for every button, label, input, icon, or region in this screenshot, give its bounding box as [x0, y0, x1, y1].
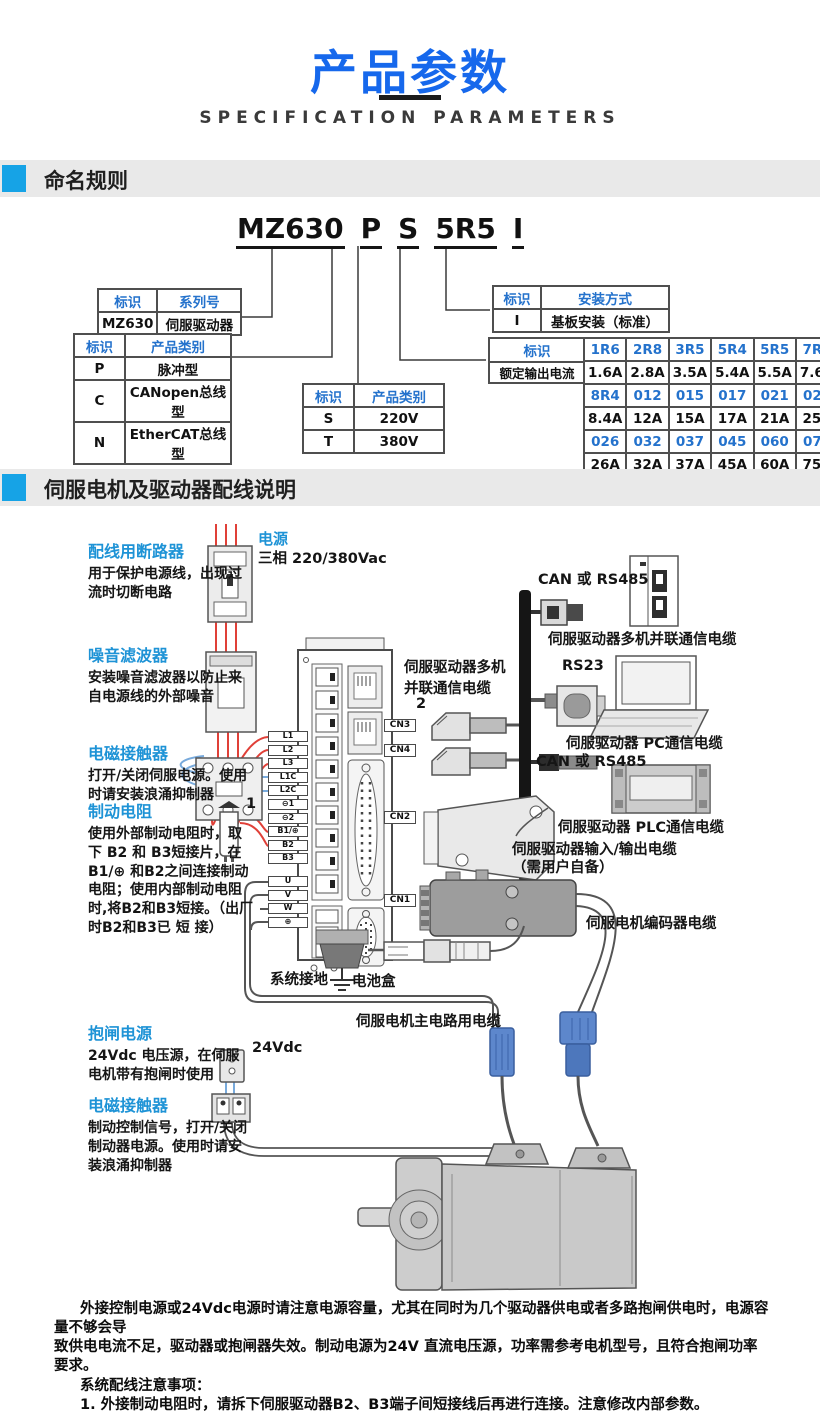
current-cell: 5.5A	[754, 361, 796, 384]
model-segment-voltage: S	[397, 212, 419, 249]
model-segment-mount: I	[512, 212, 524, 249]
terminal-L1: L1	[268, 731, 308, 742]
terminal-L1C: L1C	[268, 772, 308, 783]
current-cell: 075	[796, 430, 820, 453]
type-cell: EtherCAT总线型	[125, 422, 231, 464]
voltage-cell: S	[303, 407, 354, 430]
type-cell: N	[74, 422, 125, 464]
note-contactor: 电磁接触器 打开/关闭伺服电源。使用时请安装浪涌抑制器	[88, 740, 248, 805]
terminal-W: W	[268, 903, 308, 914]
mount-cell: I	[493, 309, 541, 332]
current-cell: 7R6	[796, 338, 820, 361]
current-cell: 1R6	[584, 338, 626, 361]
footer-line: 系统配线注意事项：	[54, 1377, 770, 1396]
terminal-ground: ⊕	[268, 917, 308, 928]
note-body: 使用外部制动电阻时，取下 B2 和 B3短接片，在B1/⊕ 和B2之间连接制动电…	[88, 825, 254, 938]
current-cell: 15A	[669, 407, 711, 430]
voltage-cell: 220V	[354, 407, 444, 430]
current-cell: 3R5	[669, 338, 711, 361]
page-title: 产品参数	[0, 34, 820, 103]
title-underline	[379, 95, 441, 100]
current-cell: 8.4A	[584, 407, 626, 430]
series-cell: 伺服驱动器	[157, 312, 241, 335]
terminal-L3: L3	[268, 758, 308, 769]
current-cell: 8R4	[584, 384, 626, 407]
footer-line: 外接控制电源或24Vdc电源时请注意电源容量，尤其在同时为几个驱动器供电或者多路…	[54, 1300, 770, 1338]
type-header: 标识	[74, 334, 125, 357]
current-cell: 21A	[754, 407, 796, 430]
note-breaker: 配线用断路器 用于保护电源线，出现过流时切断电路	[88, 538, 248, 603]
note-body: 制动控制信号，打开/关闭制动器电源。使用时请安装浪涌抑制器	[88, 1119, 248, 1175]
series-header: 标识	[98, 289, 157, 312]
type-table: 标识 产品类别 P 脉冲型 C CANopen总线型 N EtherCAT总线型	[73, 333, 232, 465]
footer-line: 致供电电流不足，驱动器或抱闸器失效。制动电源为24V 直流电压源，功率需参考电机…	[54, 1338, 770, 1376]
model-code: MZ630 P S 5R5 I	[236, 212, 524, 249]
wiring-diagram: 电源 三相 220/380Vac 配线用断路器 用于保护电源线，出现过流时切断电…	[0, 510, 820, 1300]
terminal-L2C: L2C	[268, 785, 308, 796]
section-wiring-header: 伺服电机及驱动器配线说明	[0, 469, 820, 506]
voltage-header: 产品类别	[354, 384, 444, 407]
cn4-port-label: CN4	[384, 744, 416, 757]
note-body: 安装噪音滤波器以防止来自电源线的外部噪音	[88, 669, 248, 707]
num2-label: 2	[416, 696, 426, 712]
terminal-B2: B2	[268, 840, 308, 851]
terminal-minus2: ⊖2	[268, 813, 308, 824]
type-cell: C	[74, 380, 125, 422]
current-label: 额定输出电流	[489, 362, 585, 383]
current-cell: 021	[754, 384, 796, 407]
v24-label: 24Vdc	[252, 1040, 302, 1056]
multi-cable-label: 伺服驱动器多机并联通信电缆	[548, 628, 737, 649]
type-header: 产品类别	[125, 334, 231, 357]
daisy-chain-graphic	[531, 556, 678, 626]
footer-notes: 外接控制电源或24Vdc电源时请注意电源容量，尤其在同时为几个驱动器供电或者多路…	[54, 1300, 770, 1412]
encoder-cable-label: 伺服电机编码器电缆	[586, 912, 717, 933]
terminal-minus1: ⊖1	[268, 799, 308, 810]
current-cell: 2.8A	[626, 361, 668, 384]
current-cell: 026	[584, 430, 626, 453]
current-cell: 037	[669, 430, 711, 453]
current-cell: 3.5A	[669, 361, 711, 384]
main-cable-label: 伺服电机主电路用电缆	[356, 1010, 501, 1031]
current-cell: 060	[754, 430, 796, 453]
rs23-label: RS23	[562, 658, 604, 674]
rj45-cable-graphic	[432, 713, 522, 775]
section-wiring-title: 伺服电机及驱动器配线说明	[44, 474, 296, 504]
note-title: 噪音滤波器	[88, 642, 248, 666]
note-body: 24Vdc 电压源，在伺服电机带有抱闸时使用	[88, 1047, 248, 1085]
num1-label: 1	[246, 796, 256, 812]
pc-cable-graphic	[531, 686, 605, 726]
current-cell: 2R8	[626, 338, 668, 361]
terminal-V: V	[268, 890, 308, 901]
series-cell: MZ630	[98, 312, 157, 335]
section-marker-icon	[2, 165, 26, 192]
mount-header: 标识	[493, 286, 541, 309]
current-cell: 015	[669, 384, 711, 407]
current-label-table: 标识 额定输出电流	[488, 337, 586, 384]
servo-drive-graphic	[298, 638, 392, 971]
product-spec-page: 产品参数 SPECIFICATION PARAMETERS 命名规则 MZ630…	[0, 0, 820, 1412]
can-rs485-mid-label: CAN 或 RS485	[536, 750, 646, 771]
section-naming-title: 命名规则	[44, 165, 128, 195]
current-cell: 5.4A	[711, 361, 753, 384]
motor-graphic	[358, 1144, 636, 1290]
note-title: 配线用断路器	[88, 538, 248, 562]
cn2-port-label: CN2	[384, 811, 416, 824]
footer-line: 1. 外接制动电阻时，请拆下伺服驱动器B2、B3端子间短接线后再进行连接。注意修…	[54, 1396, 770, 1412]
voltage-header: 标识	[303, 384, 354, 407]
note-title: 抱闸电源	[88, 1020, 248, 1044]
motor-connectors-graphic	[490, 1012, 598, 1146]
type-cell: CANopen总线型	[125, 380, 231, 422]
current-cell: 17A	[711, 407, 753, 430]
power-label-title: 电源	[258, 528, 288, 549]
mount-table: 标识 安装方式 I 基板安装（标准）	[492, 285, 670, 333]
mount-cell: 基板安装（标准）	[541, 309, 669, 332]
plc-cable-label: 伺服驱动器 PLC通信电缆	[558, 816, 724, 837]
current-cell: 1.6A	[584, 361, 626, 384]
current-grid-table: 1R6 2R8 3R5 5R4 5R5 7R6 1.6A 2.8A 3.5A 5…	[583, 337, 820, 477]
current-cell: 5R4	[711, 338, 753, 361]
note-title: 制动电阻	[88, 798, 254, 822]
cn3-port-label: CN3	[384, 719, 416, 732]
note-brake-resistor: 制动电阻 使用外部制动电阻时，取下 B2 和 B3短接片，在B1/⊕ 和B2之间…	[88, 798, 254, 938]
terminal-U: U	[268, 876, 308, 887]
laptop-graphic	[590, 656, 708, 738]
model-segment-current: 5R5	[434, 212, 497, 249]
terminal-L2: L2	[268, 745, 308, 756]
cn1-port-label: CN1	[384, 894, 416, 907]
voltage-cell: 380V	[354, 430, 444, 453]
model-segment-type: P	[360, 212, 383, 249]
voltage-table: 标识 产品类别 S 220V T 380V	[302, 383, 445, 454]
plc-graphic	[612, 765, 710, 813]
series-header: 系列号	[157, 289, 241, 312]
note-title: 电磁接触器	[88, 1092, 248, 1116]
page-subtitle: SPECIFICATION PARAMETERS	[0, 108, 820, 128]
current-cell: 5R5	[754, 338, 796, 361]
battery-box-label: 电池盒	[352, 970, 396, 991]
multi-cable2-label: 伺服驱动器多机并联通信电缆	[404, 656, 512, 698]
current-cell: 12A	[626, 407, 668, 430]
section-naming-header: 命名规则	[0, 160, 820, 197]
note-title: 电磁接触器	[88, 740, 248, 764]
type-cell: P	[74, 357, 125, 380]
io-cable-label2: （需用户自备）	[512, 856, 614, 877]
type-cell: 脉冲型	[125, 357, 231, 380]
current-cell: 012	[626, 384, 668, 407]
voltage-cell: T	[303, 430, 354, 453]
system-ground-label: 系统接地	[270, 968, 328, 989]
can-rs485-top-label: CAN 或 RS485	[538, 568, 648, 589]
current-cell: 25A	[796, 407, 820, 430]
current-cell: 7.6A	[796, 361, 820, 384]
note-brake-power: 抱闸电源 24Vdc 电压源，在伺服电机带有抱闸时使用	[88, 1020, 248, 1085]
model-segment-series: MZ630	[236, 212, 345, 249]
current-cell: 045	[711, 430, 753, 453]
series-table: 标识 系列号 MZ630 伺服驱动器	[97, 288, 242, 336]
current-cell: 032	[626, 430, 668, 453]
current-cell: 025	[796, 384, 820, 407]
terminal-B1: B1/⊕	[268, 826, 308, 837]
brake-cable-graphic	[224, 1122, 512, 1156]
mount-header: 安装方式	[541, 286, 669, 309]
naming-diagram: MZ630 P S 5R5 I 标识 系列号 MZ630 伺服驱动器 标识 安装…	[0, 200, 820, 466]
current-header: 标识	[489, 338, 585, 362]
note-body: 用于保护电源线，出现过流时切断电路	[88, 565, 248, 603]
current-cell: 017	[711, 384, 753, 407]
note-brake-contactor: 电磁接触器 制动控制信号，打开/关闭制动器电源。使用时请安装浪涌抑制器	[88, 1092, 248, 1175]
note-filter: 噪音滤波器 安装噪音滤波器以防止来自电源线的外部噪音	[88, 642, 248, 707]
terminal-B3: B3	[268, 853, 308, 864]
power-label-body: 三相 220/380Vac	[258, 547, 387, 568]
section-marker-icon	[2, 474, 26, 501]
